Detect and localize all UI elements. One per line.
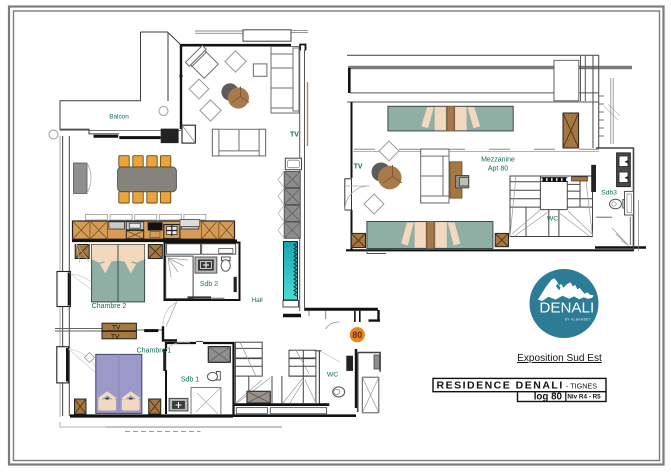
svg-text:Apt 80: Apt 80	[488, 166, 508, 173]
svg-text:Chambre 2: Chambre 2	[92, 303, 127, 310]
svg-text:- TIGNES: - TIGNES	[566, 382, 597, 391]
svg-text:Sdb 1: Sdb 1	[181, 377, 199, 384]
svg-text:Mezzanine: Mezzanine	[481, 157, 515, 164]
svg-text:DENALI: DENALI	[539, 299, 594, 316]
svg-text:Sdb 2: Sdb 2	[200, 281, 218, 288]
svg-text:Exposition Sud Est: Exposition Sud Est	[517, 353, 602, 364]
svg-text:TV: TV	[112, 325, 121, 332]
svg-text:Balcon: Balcon	[109, 114, 129, 121]
svg-text:TV: TV	[111, 333, 120, 340]
svg-text:Hall: Hall	[251, 297, 263, 304]
svg-text:BY ALBANSET: BY ALBANSET	[565, 318, 591, 322]
svg-text:80: 80	[352, 330, 362, 340]
svg-text:TV: TV	[354, 164, 363, 171]
svg-text:Niv R4 - R5: Niv R4 - R5	[567, 394, 601, 401]
svg-text:Sdb3: Sdb3	[601, 190, 617, 197]
svg-text:TV: TV	[290, 132, 299, 139]
svg-text:log 80: log 80	[534, 392, 563, 403]
svg-text:RESIDENCE DENALI: RESIDENCE DENALI	[437, 380, 564, 392]
svg-text:WC: WC	[327, 372, 338, 379]
svg-text:WC: WC	[547, 216, 558, 223]
